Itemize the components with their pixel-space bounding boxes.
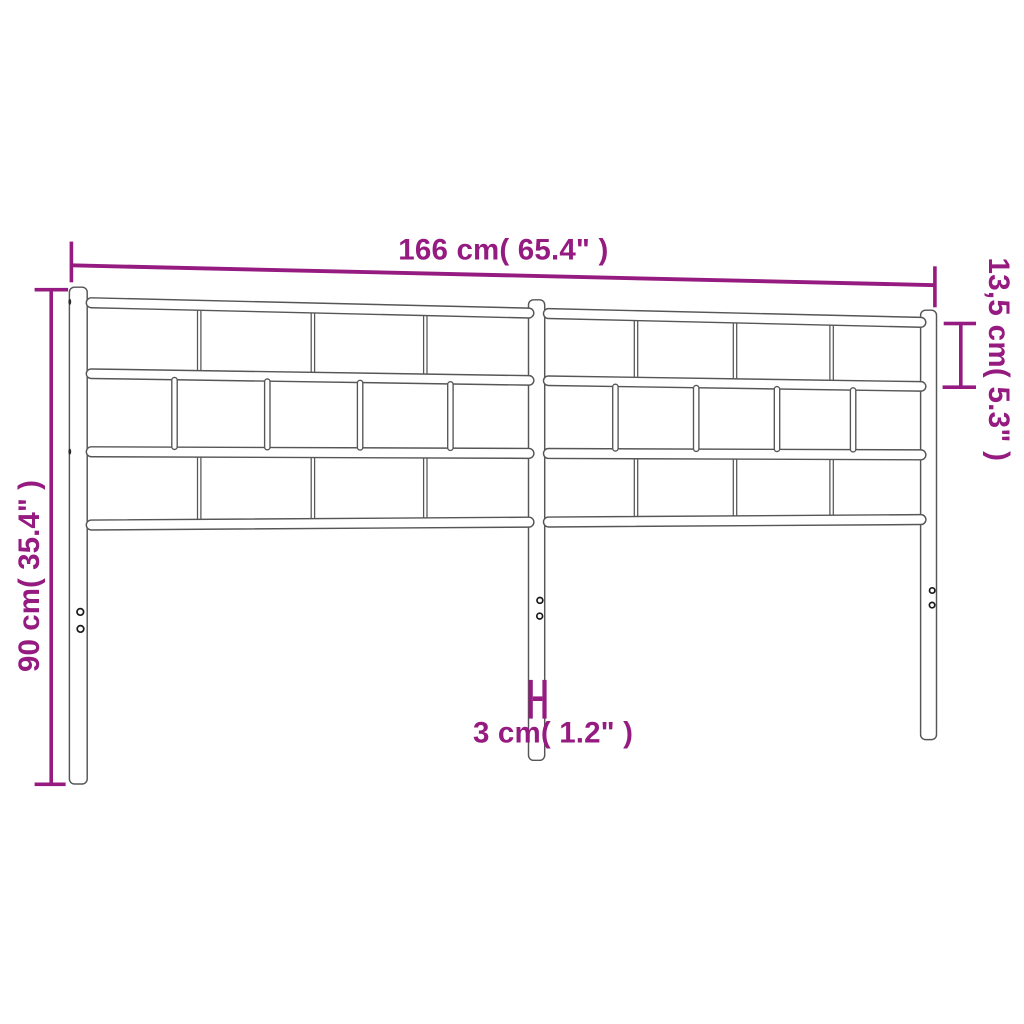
svg-text:13,5 cm( 5.3" ): 13,5 cm( 5.3" ) (982, 258, 1015, 462)
svg-text:166 cm( 65.4" ): 166 cm( 65.4" ) (398, 233, 608, 266)
svg-text:90 cm( 35.4" ): 90 cm( 35.4" ) (13, 480, 46, 672)
svg-text:3 cm( 1.2" ): 3 cm( 1.2" ) (473, 716, 633, 749)
